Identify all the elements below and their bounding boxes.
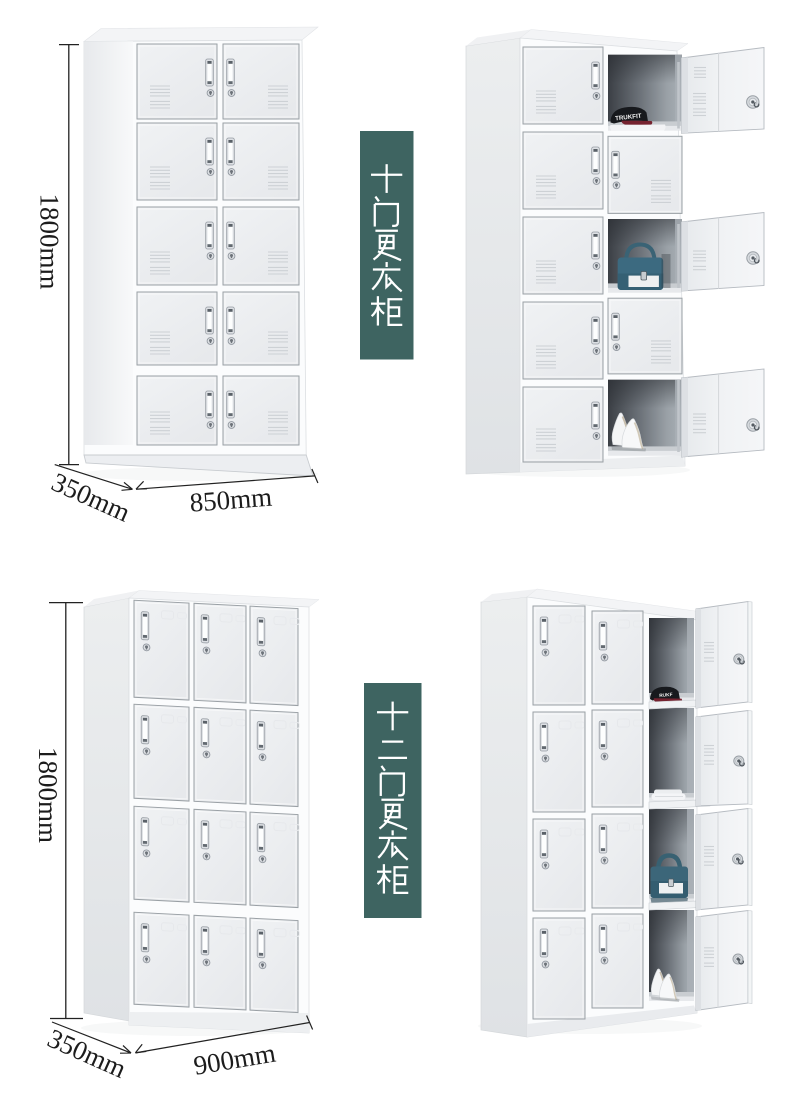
svg-text:1800mm: 1800mm [34, 193, 64, 289]
svg-text:1800mm: 1800mm [33, 747, 63, 843]
svg-text:900mm: 900mm [191, 1038, 277, 1081]
svg-text:RUKF: RUKF [659, 692, 673, 699]
svg-text:850mm: 850mm [189, 482, 274, 518]
